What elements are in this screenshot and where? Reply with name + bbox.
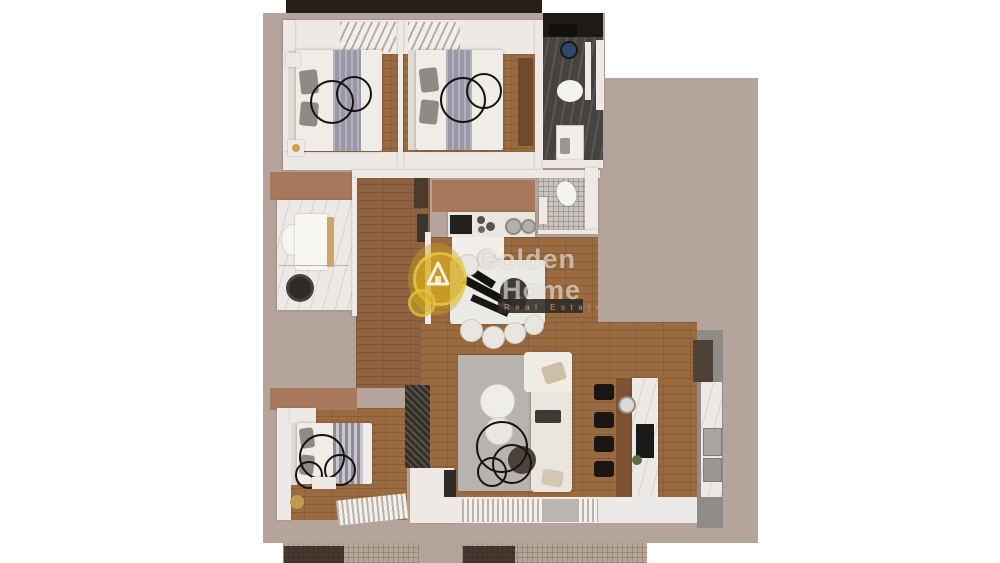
coffee-table-large: [480, 384, 515, 419]
wc-door-leaf: [539, 197, 547, 224]
dining-chair-white: [482, 326, 505, 349]
bathroom-floor-line: [279, 265, 349, 266]
watermark-tagline: Real Estate: [504, 304, 606, 312]
kitchen-sink-bowl: [505, 218, 522, 235]
toilet: [557, 80, 583, 102]
wall-wc-bottom: [538, 230, 598, 234]
bed1-nightstand-top: [286, 53, 300, 67]
house-icon: [424, 258, 452, 288]
bar-stool: [594, 384, 614, 400]
nightstand-lamp-gold: [292, 144, 300, 152]
built-in-oven: [703, 458, 722, 482]
balcony-right-shadow: [463, 546, 515, 563]
bar-stool: [594, 412, 614, 428]
balcony-left-shadow: [284, 546, 344, 563]
bottom-right-floor-strip: [598, 497, 695, 523]
closet-band-bedroom3: [270, 388, 357, 410]
wall-bath-bottom: [543, 160, 603, 168]
bedroom2-ceiling-slats: [408, 22, 460, 52]
cooktop-burner: [478, 226, 485, 233]
wall-horizontal-mid: [352, 170, 600, 178]
ring-light-decor: [336, 76, 372, 112]
bedroom1-ceiling-slats: [340, 22, 396, 52]
bathroom-sink-round: [562, 43, 576, 57]
bathroom-sink-dark: [289, 277, 311, 299]
sofa-tray-table: [535, 410, 561, 423]
hall-door-leaf: [414, 178, 428, 208]
cooktop-burner: [486, 222, 495, 231]
ring-light-decor: [466, 73, 502, 109]
dining-chair-white: [460, 319, 483, 342]
bed2-pillow: [419, 99, 439, 125]
built-in-oven: [703, 428, 722, 456]
window-blind: [462, 499, 544, 522]
dining-chair-white: [504, 322, 526, 344]
bar-stool: [594, 461, 614, 477]
closet-band-kitchen: [432, 180, 535, 212]
bed2-pillow: [419, 67, 440, 93]
washing-machine-door: [560, 138, 570, 154]
dining-chair-white: [524, 315, 544, 335]
bedroom2-window-sill: [403, 152, 535, 170]
watermark-word-home: Home: [502, 277, 581, 304]
bathroom-divider: [585, 42, 591, 100]
watermark-logo-small-ring: [408, 289, 436, 317]
bathroom-vanity-wood-edge: [327, 217, 334, 267]
wall-hall-left: [352, 178, 357, 316]
island-cooktop: [636, 424, 654, 458]
bed2-headboard: [408, 50, 416, 150]
island-plant: [632, 455, 642, 465]
cooktop-panel: [450, 215, 472, 234]
island-knob: [618, 396, 636, 414]
wall-tab-between-balconies: [419, 543, 462, 563]
sofa-pillow: [541, 468, 564, 487]
wall-bath-right: [596, 40, 604, 110]
bar-stool: [594, 436, 614, 452]
ring-light-decor: [477, 457, 507, 487]
wall-bed1-bed2: [398, 20, 403, 170]
bedroom2-wardrobe-brown: [518, 58, 533, 146]
watermark-word-golden: Golden: [477, 246, 576, 273]
closet-band-over-bath2: [270, 172, 352, 200]
bedroom3-wardrobe-dark: [405, 385, 430, 468]
cabinet-upper-dark-wood: [693, 340, 713, 382]
bathroom-vanity: [295, 214, 329, 270]
cooktop-burner: [477, 216, 485, 224]
bedroom3-left-wall: [277, 408, 291, 520]
bed3-bench: [312, 477, 336, 489]
bathroom-towel: [549, 24, 577, 37]
gold-stool: [290, 495, 304, 509]
bedroom3-dresser: [290, 408, 316, 424]
top-balcony-dark-strip: [286, 0, 542, 13]
wall-bed2-bath: [535, 20, 543, 170]
wall-wc-right: [585, 168, 598, 232]
floor-plan-screenshot: Golden Home Real Estate: [0, 0, 1000, 563]
blind-gray-section: [544, 499, 577, 522]
kitchen-sink-bowl: [521, 219, 536, 234]
